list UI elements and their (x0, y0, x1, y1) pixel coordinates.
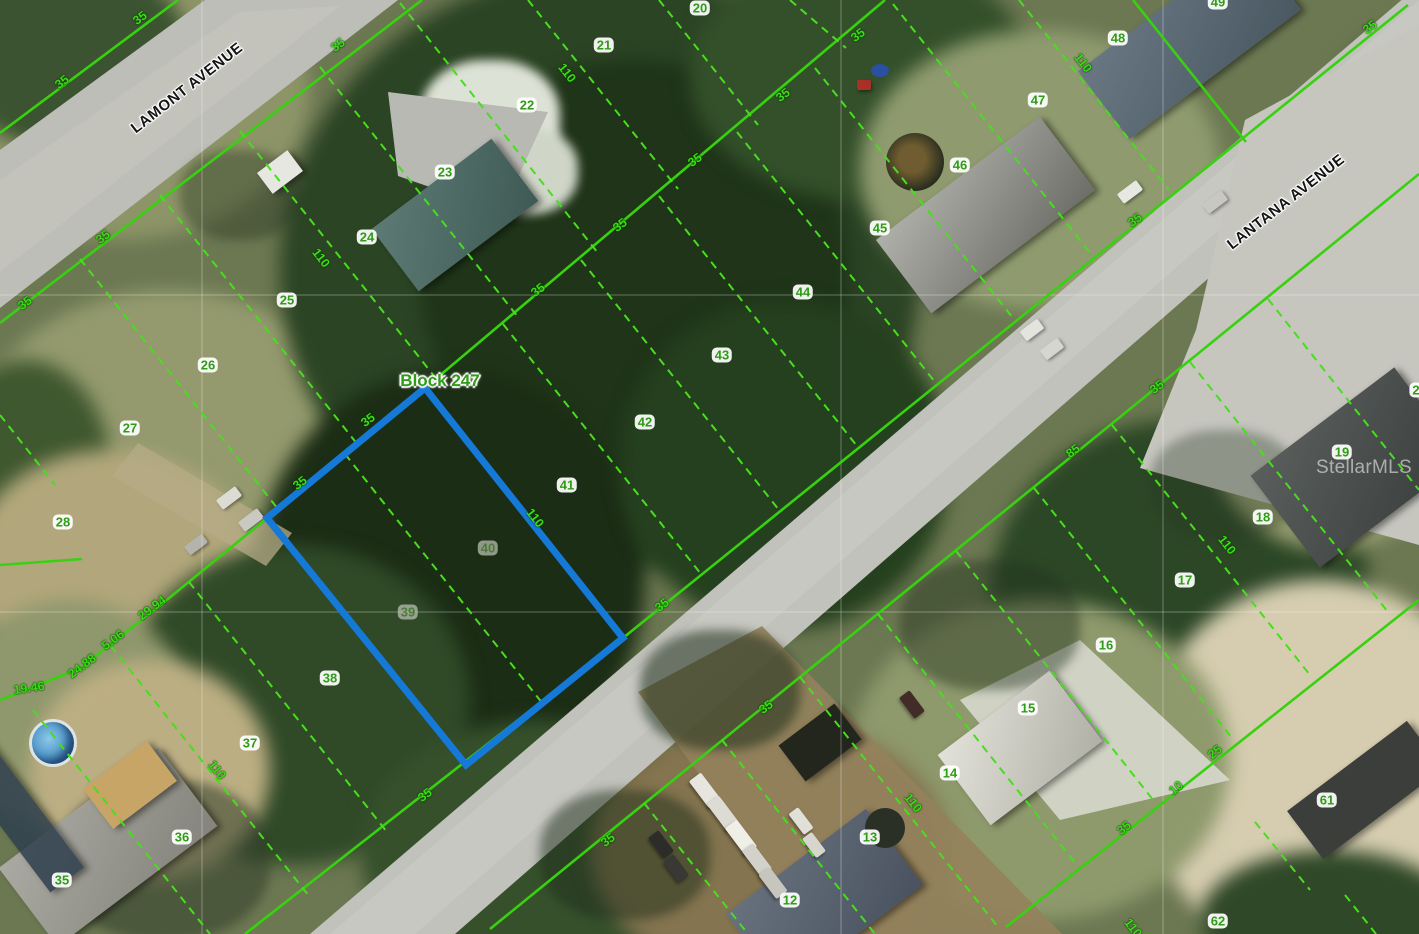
lot-boundary-line (659, 0, 758, 125)
lot-label-28: 28 (53, 515, 73, 530)
lot-boundary-line (893, 4, 1091, 254)
lot-boundary-line (189, 582, 387, 832)
parcel-overlay (0, 0, 1419, 934)
lot-label-61: 61 (1317, 793, 1337, 808)
lot-label-42: 42 (635, 415, 655, 430)
lot-boundary-line (878, 614, 1076, 864)
lot-label-17: 17 (1175, 573, 1195, 588)
lot-label-15: 15 (1018, 701, 1038, 716)
block-boundary-line (0, 559, 82, 565)
lot-label-38: 38 (320, 671, 340, 686)
lot-label-35: 35 (52, 873, 72, 888)
highlighted-parcel-outline (267, 388, 623, 765)
lot-boundary-line (956, 551, 1154, 801)
lot-boundary-line (1190, 362, 1388, 612)
lot-boundary-line (1034, 488, 1232, 738)
lot-label-12: 12 (780, 893, 800, 908)
lot-boundary-line (815, 68, 1013, 318)
block-boundary-line (0, 0, 422, 323)
lot-label-2: 2 (1409, 383, 1419, 398)
lot-label-37: 37 (240, 736, 260, 751)
lot-boundary-line (790, 0, 846, 48)
block-boundary-line (1006, 600, 1419, 927)
lot-boundary-line (528, 0, 678, 189)
lot-boundary-line (503, 324, 701, 574)
lot-boundary-line (581, 260, 779, 510)
lot-label-25: 25 (277, 293, 297, 308)
lot-label-48: 48 (1108, 31, 1128, 46)
stellar-mls-watermark: StellarMLS (1316, 457, 1412, 479)
lot-label-23: 23 (435, 165, 455, 180)
lot-boundary-line (0, 415, 55, 485)
lot-boundary-line (240, 131, 438, 381)
lot-boundary-line (1255, 822, 1310, 890)
lot-label-24: 24 (357, 230, 377, 245)
lot-label-20: 20 (690, 1, 710, 16)
lot-label-21: 21 (594, 38, 614, 53)
lot-boundary-line (737, 132, 935, 382)
lot-boundary-line (33, 710, 210, 934)
lot-label-18: 18 (1253, 510, 1273, 525)
lot-label-49: 49 (1208, 0, 1228, 10)
lot-label-46: 46 (950, 158, 970, 173)
lot-boundary-line (320, 67, 518, 317)
lot-boundary-line (400, 3, 598, 253)
lot-boundary-line (1345, 895, 1376, 934)
lot-label-45: 45 (870, 221, 890, 236)
lot-label-26: 26 (198, 358, 218, 373)
lot-label-39: 39 (398, 605, 418, 620)
lot-label-41: 41 (557, 478, 577, 493)
lot-label-16: 16 (1096, 638, 1116, 653)
lot-label-22: 22 (517, 98, 537, 113)
lot-boundary-line (659, 196, 857, 446)
lot-label-44: 44 (793, 285, 813, 300)
block-boundary-line (1133, 0, 1246, 142)
aerial-map: 2021222324252627283536373839404142434445… (0, 0, 1419, 934)
lot-boundary-line (1112, 425, 1310, 675)
lot-label-13: 13 (860, 830, 880, 845)
lot-boundary-line (800, 677, 998, 927)
lot-boundary-line (345, 454, 543, 704)
lot-label-27: 27 (120, 421, 140, 436)
lot-label-14: 14 (940, 766, 960, 781)
block-label: Block 247 (400, 371, 479, 391)
lot-label-47: 47 (1028, 93, 1048, 108)
lot-label-40: 40 (478, 541, 498, 556)
lot-boundary-line (160, 195, 358, 445)
lot-label-43: 43 (712, 348, 732, 363)
lot-label-62: 62 (1208, 914, 1228, 929)
block-boundary-line (0, 0, 885, 700)
lot-boundary-line (80, 259, 278, 509)
lot-label-36: 36 (172, 830, 192, 845)
lot-boundary-line (644, 803, 748, 934)
block-boundary-line (490, 174, 1419, 929)
